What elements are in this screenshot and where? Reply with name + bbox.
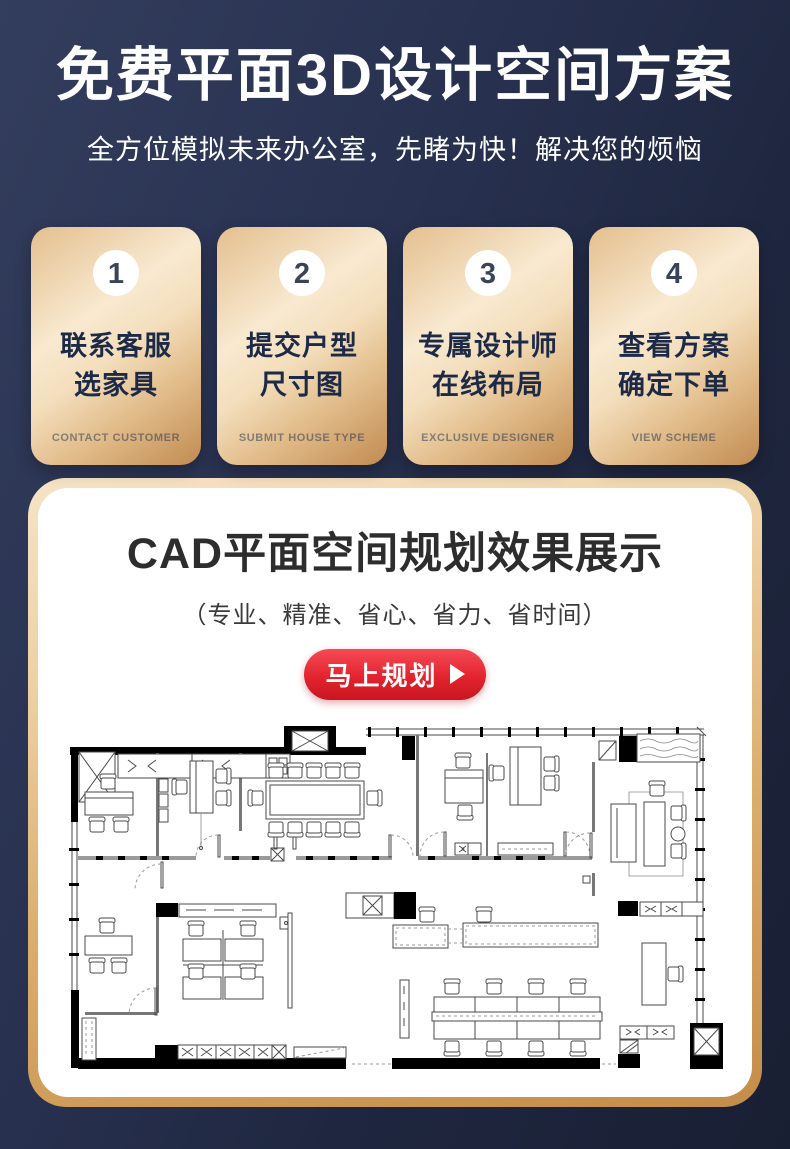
page-subtitle: 全方位模拟未来办公室，先睹为快！解决您的烦恼 <box>0 128 790 167</box>
step-title-line2: 尺寸图 <box>260 370 344 400</box>
step-number-badge: 2 <box>279 250 325 296</box>
step-title-line1: 联系客服 <box>60 331 172 361</box>
step-title-line2: 确定下单 <box>618 370 730 400</box>
step-title: 查看方案 确定下单 <box>589 327 759 405</box>
steps-section: 1 联系客服 选家具 CONTACT CUSTOMER 2 提交户型 尺寸图 S… <box>31 227 759 465</box>
showcase-gold-frame: CAD平面空间规划效果展示 （专业、精准、省心、省力、省时间） 马上规划 <box>28 478 762 1107</box>
step-subtitle-en: VIEW SCHEME <box>589 432 759 444</box>
step-card-1: 1 联系客服 选家具 CONTACT CUSTOMER <box>31 227 201 465</box>
promo-page: 免费平面3D设计空间方案 全方位模拟未来办公室，先睹为快！解决您的烦恼 1 联系… <box>0 0 790 1149</box>
step-subtitle-en: CONTACT CUSTOMER <box>31 432 201 444</box>
page-title: 免费平面3D设计空间方案 <box>0 40 790 113</box>
play-icon <box>450 664 465 684</box>
step-number-badge: 1 <box>93 250 139 296</box>
step-title-line1: 查看方案 <box>618 331 730 361</box>
step-title-line2: 选家具 <box>74 370 158 400</box>
floor-plan-image <box>56 718 734 1095</box>
step-title-line1: 提交户型 <box>246 331 358 361</box>
step-subtitle-en: EXCLUSIVE DESIGNER <box>403 432 573 444</box>
step-number-badge: 3 <box>465 250 511 296</box>
cad-showcase-card: CAD平面空间规划效果展示 （专业、精准、省心、省力、省时间） 马上规划 <box>38 488 752 1097</box>
header: 免费平面3D设计空间方案 全方位模拟未来办公室，先睹为快！解决您的烦恼 <box>0 0 790 167</box>
step-subtitle-en: SUBMIT HOUSE TYPE <box>217 432 387 444</box>
step-title: 提交户型 尺寸图 <box>217 327 387 405</box>
step-number-badge: 4 <box>651 250 697 296</box>
step-title-line2: 在线布局 <box>432 370 544 400</box>
step-title-line1: 专属设计师 <box>418 331 558 361</box>
step-card-2: 2 提交户型 尺寸图 SUBMIT HOUSE TYPE <box>217 227 387 465</box>
plan-now-button[interactable]: 马上规划 <box>304 649 486 700</box>
plan-now-label: 马上规划 <box>325 656 437 693</box>
step-card-4: 4 查看方案 确定下单 VIEW SCHEME <box>589 227 759 465</box>
floor-plan-svg <box>56 718 734 1095</box>
showcase-title: CAD平面空间规划效果展示 <box>38 519 752 581</box>
showcase-subtitle: （专业、精准、省心、省力、省时间） <box>38 595 752 630</box>
step-title: 专属设计师 在线布局 <box>403 327 573 405</box>
step-title: 联系客服 选家具 <box>31 327 201 405</box>
step-card-3: 3 专属设计师 在线布局 EXCLUSIVE DESIGNER <box>403 227 573 465</box>
